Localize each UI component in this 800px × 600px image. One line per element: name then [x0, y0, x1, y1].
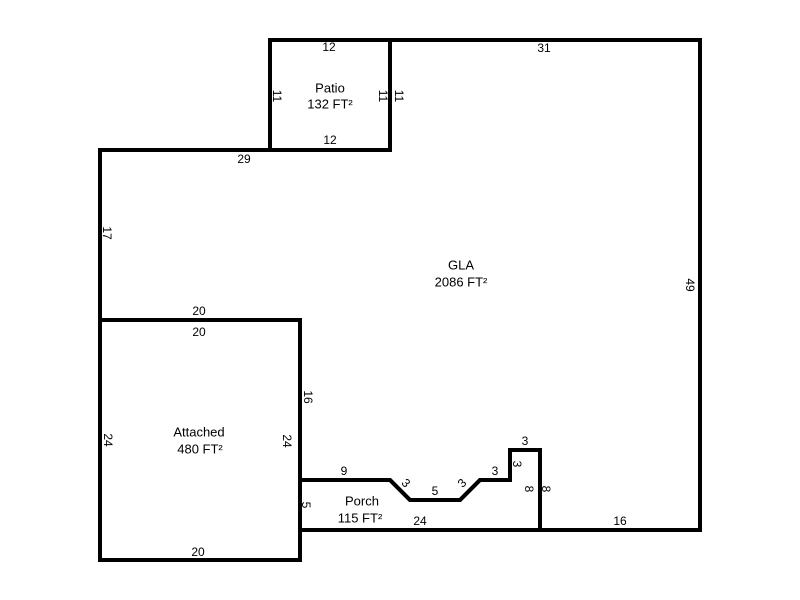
dim-porch-left: 5 [299, 502, 313, 509]
dim-patio-left: 11 [270, 90, 284, 103]
room-name-patio: Patio [315, 81, 345, 96]
room-name-gla: GLA [448, 258, 474, 273]
dim-porch-middle: 5 [432, 484, 439, 498]
dim-gla-bottom-right: 16 [613, 514, 627, 528]
dim-porch-top: 9 [341, 464, 348, 478]
dim-patio-bottom: 12 [323, 133, 337, 147]
floorplan-sketch: 12 11 11 11 12 Patio 132 FT² 31 49 29 17… [0, 0, 800, 600]
room-area-attached: 480 FT² [177, 442, 223, 457]
dim-porch-bottom: 24 [413, 514, 427, 528]
dim-gla-above-garage: 20 [192, 304, 206, 318]
room-area-patio: 132 FT² [307, 97, 353, 112]
dim-porch-right: 8 [522, 486, 536, 493]
dim-porch-step: 3 [492, 464, 499, 478]
dim-attached-left: 24 [101, 433, 115, 447]
dim-gla-left: 17 [100, 226, 114, 240]
gla-outline [100, 40, 700, 530]
room-area-gla: 2086 FT² [435, 275, 488, 290]
dim-gla-top: 31 [537, 41, 551, 55]
dim-porch-notch-top: 3 [522, 434, 529, 448]
dim-patio-right-inner: 11 [376, 90, 390, 103]
dim-gla-porch-wall: 8 [539, 486, 553, 493]
dim-attached-top: 20 [192, 325, 206, 339]
dim-patio-top: 12 [322, 40, 336, 54]
room-name-porch: Porch [345, 494, 379, 509]
room-name-attached: Attached [173, 425, 224, 440]
room-area-porch: 115 FT² [338, 511, 383, 526]
dim-gla-upper-left-top: 29 [237, 152, 251, 166]
floorplan-canvas: 12 11 11 11 12 Patio 132 FT² 31 49 29 17… [0, 0, 800, 600]
dim-attached-right: 24 [280, 434, 294, 448]
dim-gla-right: 49 [683, 278, 697, 292]
dim-attached-bottom: 20 [191, 545, 205, 559]
dim-porch-diag-right: 3 [455, 475, 470, 490]
dim-porch-notch-side: 3 [510, 461, 524, 468]
dim-patio-right-outer: 11 [392, 90, 406, 103]
attached-garage-outline [100, 320, 300, 560]
dim-gla-inner-left: 16 [301, 390, 315, 404]
